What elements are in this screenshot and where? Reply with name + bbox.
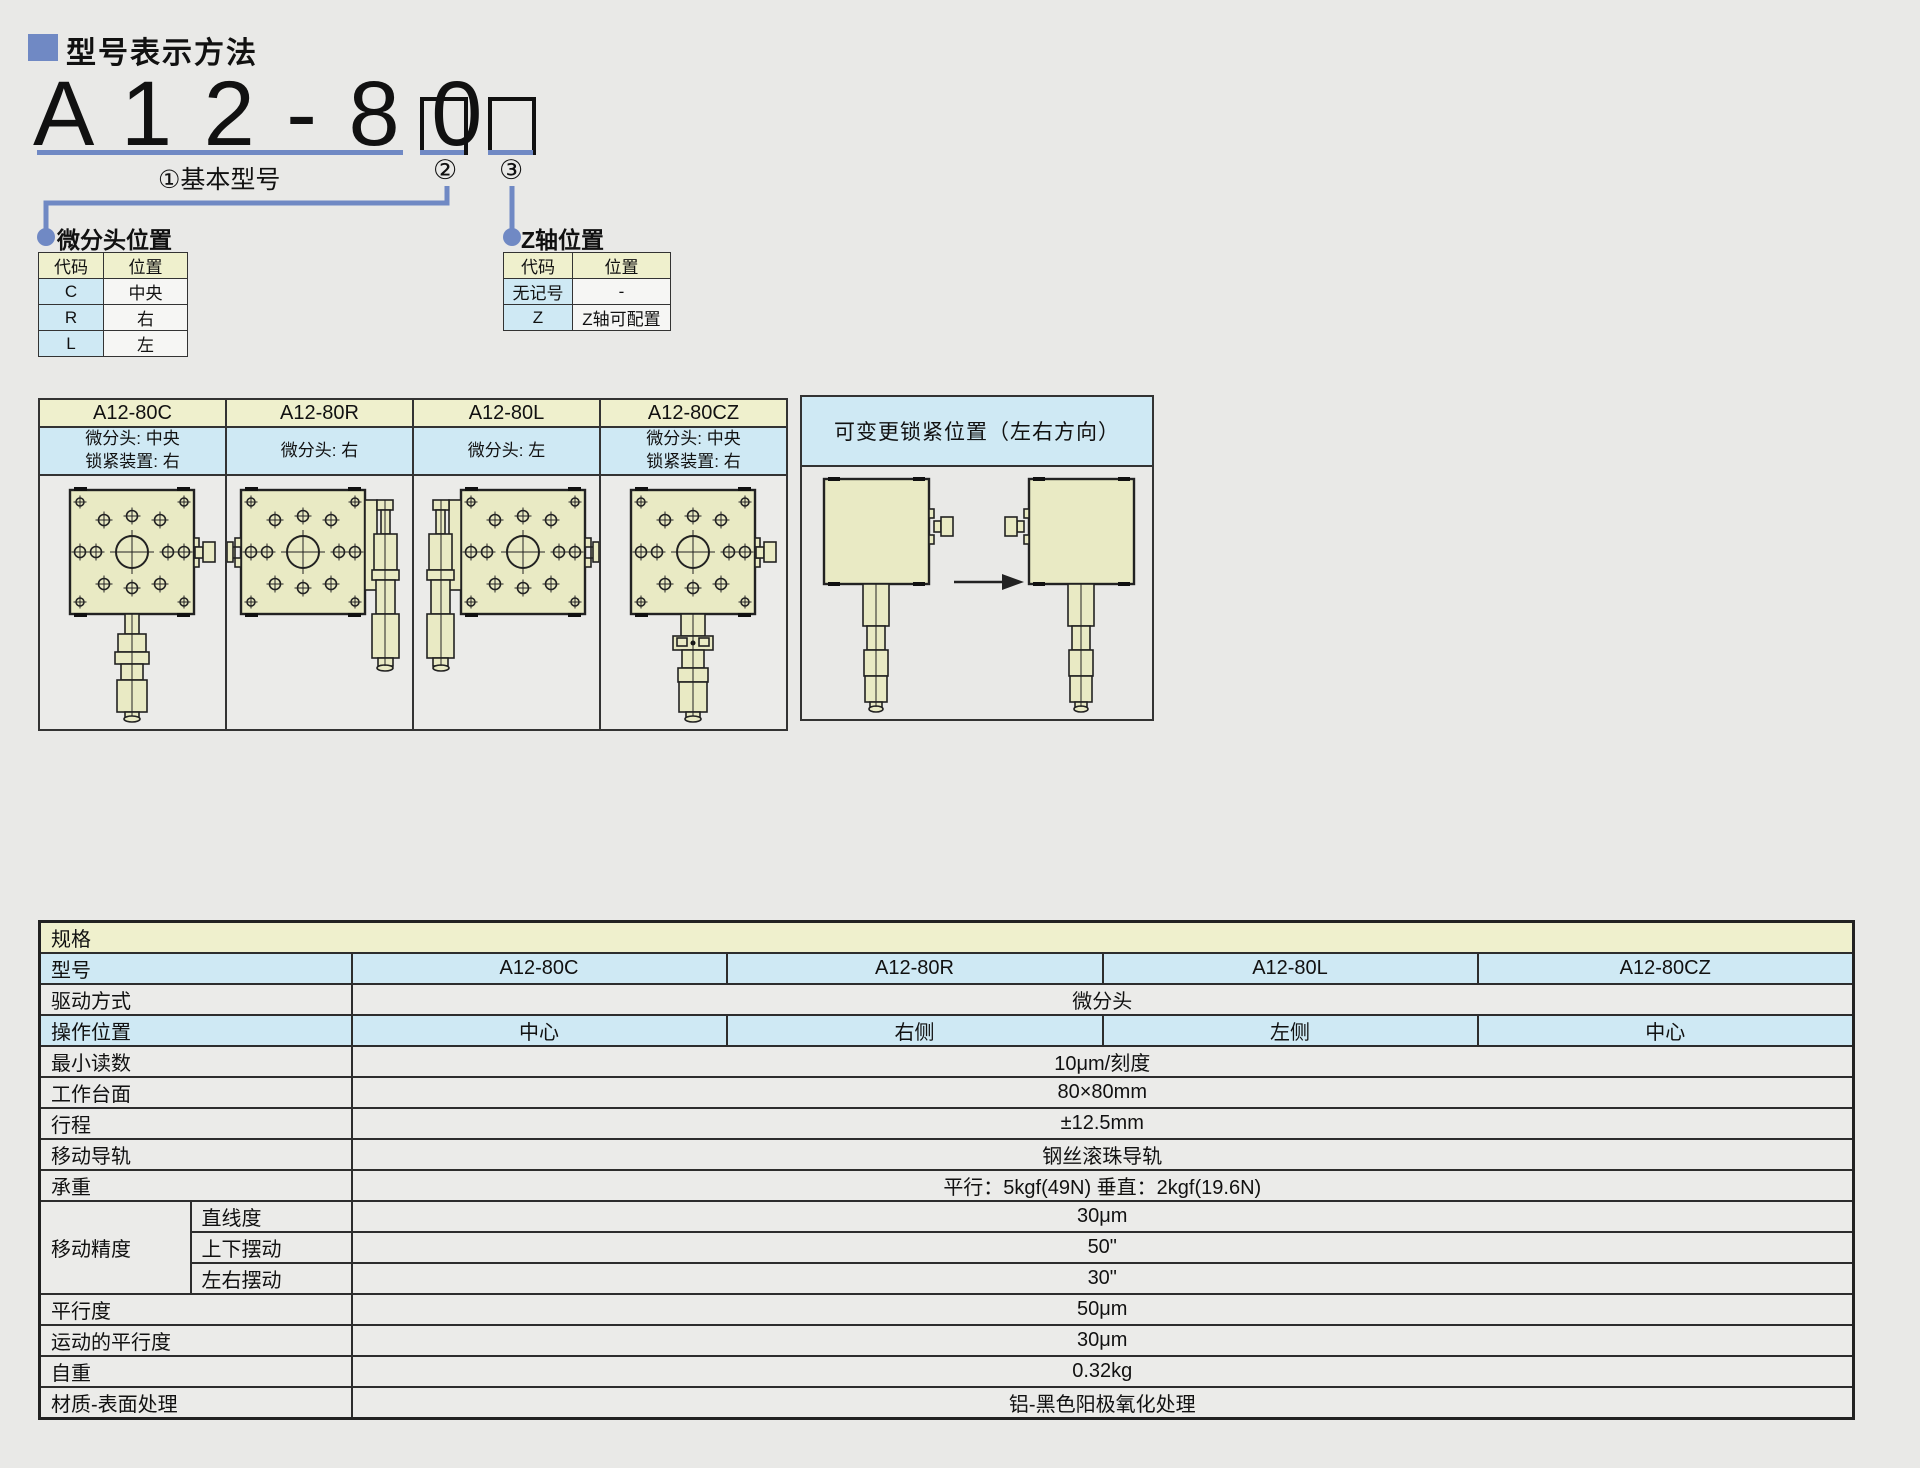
spec-op-row: 操作位置 中心 右侧 左侧 中心	[40, 1015, 1854, 1046]
spec-row: 自重 0.32kg	[40, 1356, 1854, 1387]
table-row: L 左	[39, 331, 188, 357]
tag-3-label: ③	[499, 155, 523, 186]
model-value: A12-80L	[1103, 953, 1478, 984]
spec-row: 最小读数 10μm/刻度	[40, 1046, 1854, 1077]
z-axis-position-title: Z轴位置	[521, 221, 604, 255]
accuracy-sub-label: 左右摆动	[191, 1263, 352, 1294]
catalog-page: 型号表示方法 A 1 2 - 8 0 ①基本型号 ② ③ 微分头位置 Z轴位置 …	[0, 0, 1920, 1468]
value-cell: 中央	[104, 279, 188, 305]
code-cell: R	[39, 305, 104, 331]
row-label: 操作位置	[40, 1015, 352, 1046]
table-header-row: 代码 位置	[504, 253, 671, 279]
code-cell: L	[39, 331, 104, 357]
micrometer-position-title: 微分头位置	[57, 221, 172, 255]
variant-desc-row: 微分头: 中央 锁紧装置: 右 微分头: 右 微分头: 左 微分头: 中央 锁紧…	[39, 427, 787, 475]
value-cell: 右	[104, 305, 188, 331]
lock-position-diagrams	[802, 467, 1152, 717]
row-value: ±12.5mm	[352, 1108, 1854, 1139]
accuracy-sub-label: 上下摆动	[191, 1232, 352, 1263]
row-value: 50"	[352, 1232, 1854, 1263]
variant-model: A12-80C	[39, 399, 226, 427]
spec-row: 移动导轨 钢丝滚珠导轨	[40, 1139, 1854, 1170]
row-value: 微分头	[352, 984, 1854, 1015]
spec-accuracy-row: 上下摆动 50"	[40, 1232, 1854, 1263]
row-label: 移动导轨	[40, 1139, 352, 1170]
variant-model: A12-80R	[226, 399, 413, 427]
row-value: 30"	[352, 1263, 1854, 1294]
code-cell: C	[39, 279, 104, 305]
tag-2-label: ②	[433, 155, 457, 186]
row-label: 平行度	[40, 1294, 352, 1325]
row-value: 50μm	[352, 1294, 1854, 1325]
base-model-label: ①基本型号	[158, 160, 280, 196]
stage-diagram-a12-80r	[227, 480, 412, 724]
lock-position-title: 可变更锁紧位置（左右方向）	[802, 397, 1152, 467]
accuracy-label: 移动精度	[40, 1201, 191, 1294]
header-code: 代码	[504, 253, 573, 279]
header-code: 代码	[39, 253, 104, 279]
variant-desc: 微分头: 左	[413, 427, 600, 475]
row-value: 30μm	[352, 1325, 1854, 1356]
row-value: 铝-黑色阳极氧化处理	[352, 1387, 1854, 1419]
row-label: 最小读数	[40, 1046, 352, 1077]
stage-diagram-a12-80l	[414, 480, 599, 724]
variant-model: A12-80CZ	[600, 399, 787, 427]
spec-model-row: 型号 A12-80C A12-80R A12-80L A12-80CZ	[40, 953, 1854, 984]
variant-desc: 微分头: 中央 锁紧装置: 右	[600, 427, 787, 475]
spec-row: 承重 平行：5kgf(49N) 垂直：2kgf(19.6N)	[40, 1170, 1854, 1201]
op-value: 左侧	[1103, 1015, 1478, 1046]
spec-table: 规格 型号 A12-80C A12-80R A12-80L A12-80CZ 驱…	[38, 920, 1855, 1420]
row-label: 工作台面	[40, 1077, 352, 1108]
model-value: A12-80R	[727, 953, 1103, 984]
lock-position-box: 可变更锁紧位置（左右方向）	[800, 395, 1154, 721]
spec-row: 行程 ±12.5mm	[40, 1108, 1854, 1139]
row-value: 30μm	[352, 1201, 1854, 1232]
stage-diagram-a12-80c	[40, 480, 225, 724]
table-header-row: 代码 位置	[39, 253, 188, 279]
row-value: 平行：5kgf(49N) 垂直：2kgf(19.6N)	[352, 1170, 1854, 1201]
model-value: A12-80C	[352, 953, 727, 984]
spec-row: 材质-表面处理 铝-黑色阳极氧化处理	[40, 1387, 1854, 1419]
variant-model: A12-80L	[413, 399, 600, 427]
micrometer-position-table: 代码 位置 C 中央 R 右 L 左	[38, 252, 188, 357]
spec-accuracy-row: 移动精度 直线度 30μm	[40, 1201, 1854, 1232]
table-row: Z Z轴可配置	[504, 305, 671, 331]
table-row: C 中央	[39, 279, 188, 305]
value-cell: 左	[104, 331, 188, 357]
row-value: 钢丝滚珠导轨	[352, 1139, 1854, 1170]
spec-row: 平行度 50μm	[40, 1294, 1854, 1325]
row-value: 10μm/刻度	[352, 1046, 1854, 1077]
row-label: 型号	[40, 953, 352, 984]
model-value: A12-80CZ	[1478, 953, 1854, 984]
variant-desc: 微分头: 右	[226, 427, 413, 475]
row-label: 承重	[40, 1170, 352, 1201]
value-cell: -	[573, 279, 671, 305]
header-position: 位置	[104, 253, 188, 279]
op-value: 中心	[352, 1015, 727, 1046]
spec-row: 工作台面 80×80mm	[40, 1077, 1854, 1108]
spec-title: 规格	[40, 922, 1854, 954]
variants-table: A12-80C A12-80R A12-80L A12-80CZ 微分头: 中央…	[38, 398, 788, 731]
row-label: 行程	[40, 1108, 352, 1139]
row-value: 0.32kg	[352, 1356, 1854, 1387]
row-value: 80×80mm	[352, 1077, 1854, 1108]
spec-drive-row: 驱动方式 微分头	[40, 984, 1854, 1015]
variant-model-row: A12-80C A12-80R A12-80L A12-80CZ	[39, 399, 787, 427]
z-axis-position-table: 代码 位置 无记号 - Z Z轴可配置	[503, 252, 671, 331]
row-label: 材质-表面处理	[40, 1387, 352, 1419]
spec-accuracy-row: 左右摆动 30"	[40, 1263, 1854, 1294]
spec-header-row: 规格	[40, 922, 1854, 954]
row-label: 运动的平行度	[40, 1325, 352, 1356]
stage-diagram-a12-80cz	[601, 480, 786, 724]
op-value: 右侧	[727, 1015, 1103, 1046]
value-cell: Z轴可配置	[573, 305, 671, 331]
spec-row: 运动的平行度 30μm	[40, 1325, 1854, 1356]
variant-diagram-row	[39, 475, 787, 730]
header-position: 位置	[573, 253, 671, 279]
op-value: 中心	[1478, 1015, 1854, 1046]
table-row: R 右	[39, 305, 188, 331]
row-label: 自重	[40, 1356, 352, 1387]
code-cell: Z	[504, 305, 573, 331]
code-cell: 无记号	[504, 279, 573, 305]
lock-swap-diagram	[802, 467, 1148, 717]
variant-desc: 微分头: 中央 锁紧装置: 右	[39, 427, 226, 475]
accuracy-sub-label: 直线度	[191, 1201, 352, 1232]
table-row: 无记号 -	[504, 279, 671, 305]
row-label: 驱动方式	[40, 984, 352, 1015]
